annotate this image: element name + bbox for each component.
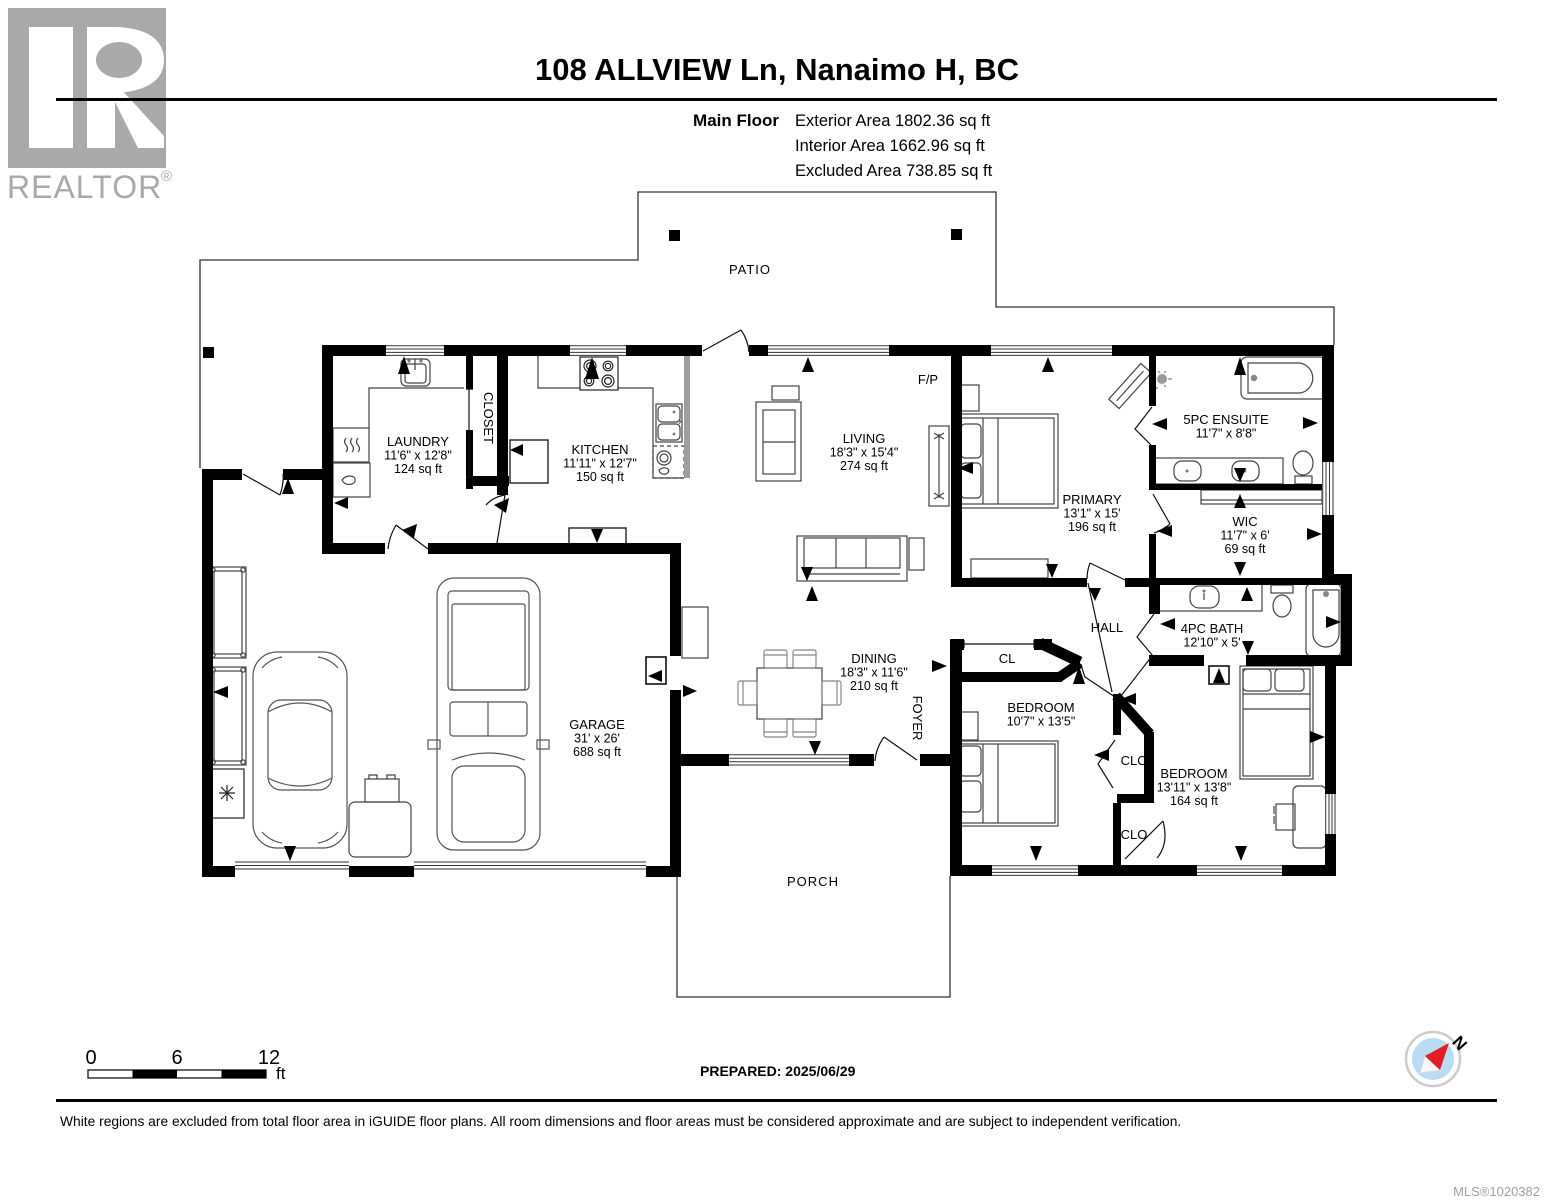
svg-text:PREPARED: 2025/06/29: PREPARED: 2025/06/29 [700, 1063, 856, 1079]
svg-text:F/P: F/P [918, 372, 938, 387]
svg-text:PORCH: PORCH [787, 874, 839, 889]
svg-text:Excluded Area 738.85 sq ft: Excluded Area 738.85 sq ft [795, 162, 993, 180]
svg-text:LIVING: LIVING [843, 431, 886, 446]
svg-text:164 sq ft: 164 sq ft [1170, 794, 1218, 808]
svg-text:PATIO: PATIO [729, 262, 771, 277]
svg-text:274 sq ft: 274 sq ft [840, 459, 888, 473]
svg-text:Main Floor: Main Floor [693, 111, 779, 130]
svg-text:BEDROOM: BEDROOM [1007, 700, 1074, 715]
svg-text:108 ALLVIEW Ln, Nanaimo H, BC: 108 ALLVIEW Ln, Nanaimo H, BC [535, 52, 1019, 87]
svg-text:REALTOR: REALTOR [7, 169, 162, 205]
svg-text:688 sq ft: 688 sq ft [573, 745, 621, 759]
svg-text:CLO: CLO [1121, 753, 1148, 768]
svg-text:11'6" x 12'8": 11'6" x 12'8" [384, 449, 452, 463]
svg-text:11'7" x 6': 11'7" x 6' [1220, 529, 1269, 543]
svg-text:5PC ENSUITE: 5PC ENSUITE [1183, 412, 1269, 427]
svg-text:11'11" x 12'7": 11'11" x 12'7" [563, 457, 637, 471]
svg-text:GARAGE: GARAGE [569, 717, 625, 732]
svg-text:DINING: DINING [851, 651, 897, 666]
svg-text:White regions are excluded fro: White regions are excluded from total fl… [60, 1114, 1181, 1129]
svg-text:13'11" x 13'8": 13'11" x 13'8" [1157, 781, 1232, 795]
svg-text:KITCHEN: KITCHEN [571, 442, 628, 457]
svg-text:CLO: CLO [1121, 827, 1148, 842]
svg-text:196 sq ft: 196 sq ft [1068, 520, 1116, 534]
svg-text:11'7" x 8'8": 11'7" x 8'8" [1196, 427, 1257, 441]
svg-text:FOYER: FOYER [910, 696, 925, 741]
svg-text:HALL: HALL [1091, 620, 1124, 635]
svg-text:13'1" x 15': 13'1" x 15' [1063, 507, 1120, 521]
svg-text:210 sq ft: 210 sq ft [850, 679, 898, 693]
svg-text:124 sq ft: 124 sq ft [394, 462, 442, 476]
svg-text:150 sq ft: 150 sq ft [576, 470, 624, 484]
svg-text:0: 0 [85, 1047, 96, 1069]
svg-text:ft: ft [276, 1064, 286, 1083]
svg-text:18'3" x 11'6": 18'3" x 11'6" [840, 666, 908, 680]
svg-text:CLOSET: CLOSET [481, 392, 496, 444]
svg-text:69 sq ft: 69 sq ft [1225, 542, 1267, 556]
svg-text:MLS®1020382: MLS®1020382 [1453, 1184, 1540, 1199]
svg-text:4PC BATH: 4PC BATH [1181, 621, 1244, 636]
svg-text:18'3" x 15'4": 18'3" x 15'4" [830, 446, 899, 460]
svg-text:CL: CL [999, 651, 1016, 666]
svg-text:®: ® [161, 168, 172, 185]
svg-text:PRIMARY: PRIMARY [1063, 492, 1122, 507]
svg-text:31' x 26': 31' x 26' [574, 732, 620, 746]
svg-text:WIC: WIC [1232, 514, 1257, 529]
svg-text:12'10" x 5': 12'10" x 5' [1183, 636, 1240, 650]
svg-text:Interior Area 1662.96 sq ft: Interior Area 1662.96 sq ft [795, 137, 985, 155]
svg-text:Exterior Area 1802.36 sq ft: Exterior Area 1802.36 sq ft [795, 112, 991, 130]
svg-text:6: 6 [171, 1047, 182, 1069]
svg-text:LAUNDRY: LAUNDRY [387, 434, 449, 449]
svg-text:BEDROOM: BEDROOM [1160, 766, 1227, 781]
svg-text:10'7" x 13'5": 10'7" x 13'5" [1007, 715, 1076, 729]
